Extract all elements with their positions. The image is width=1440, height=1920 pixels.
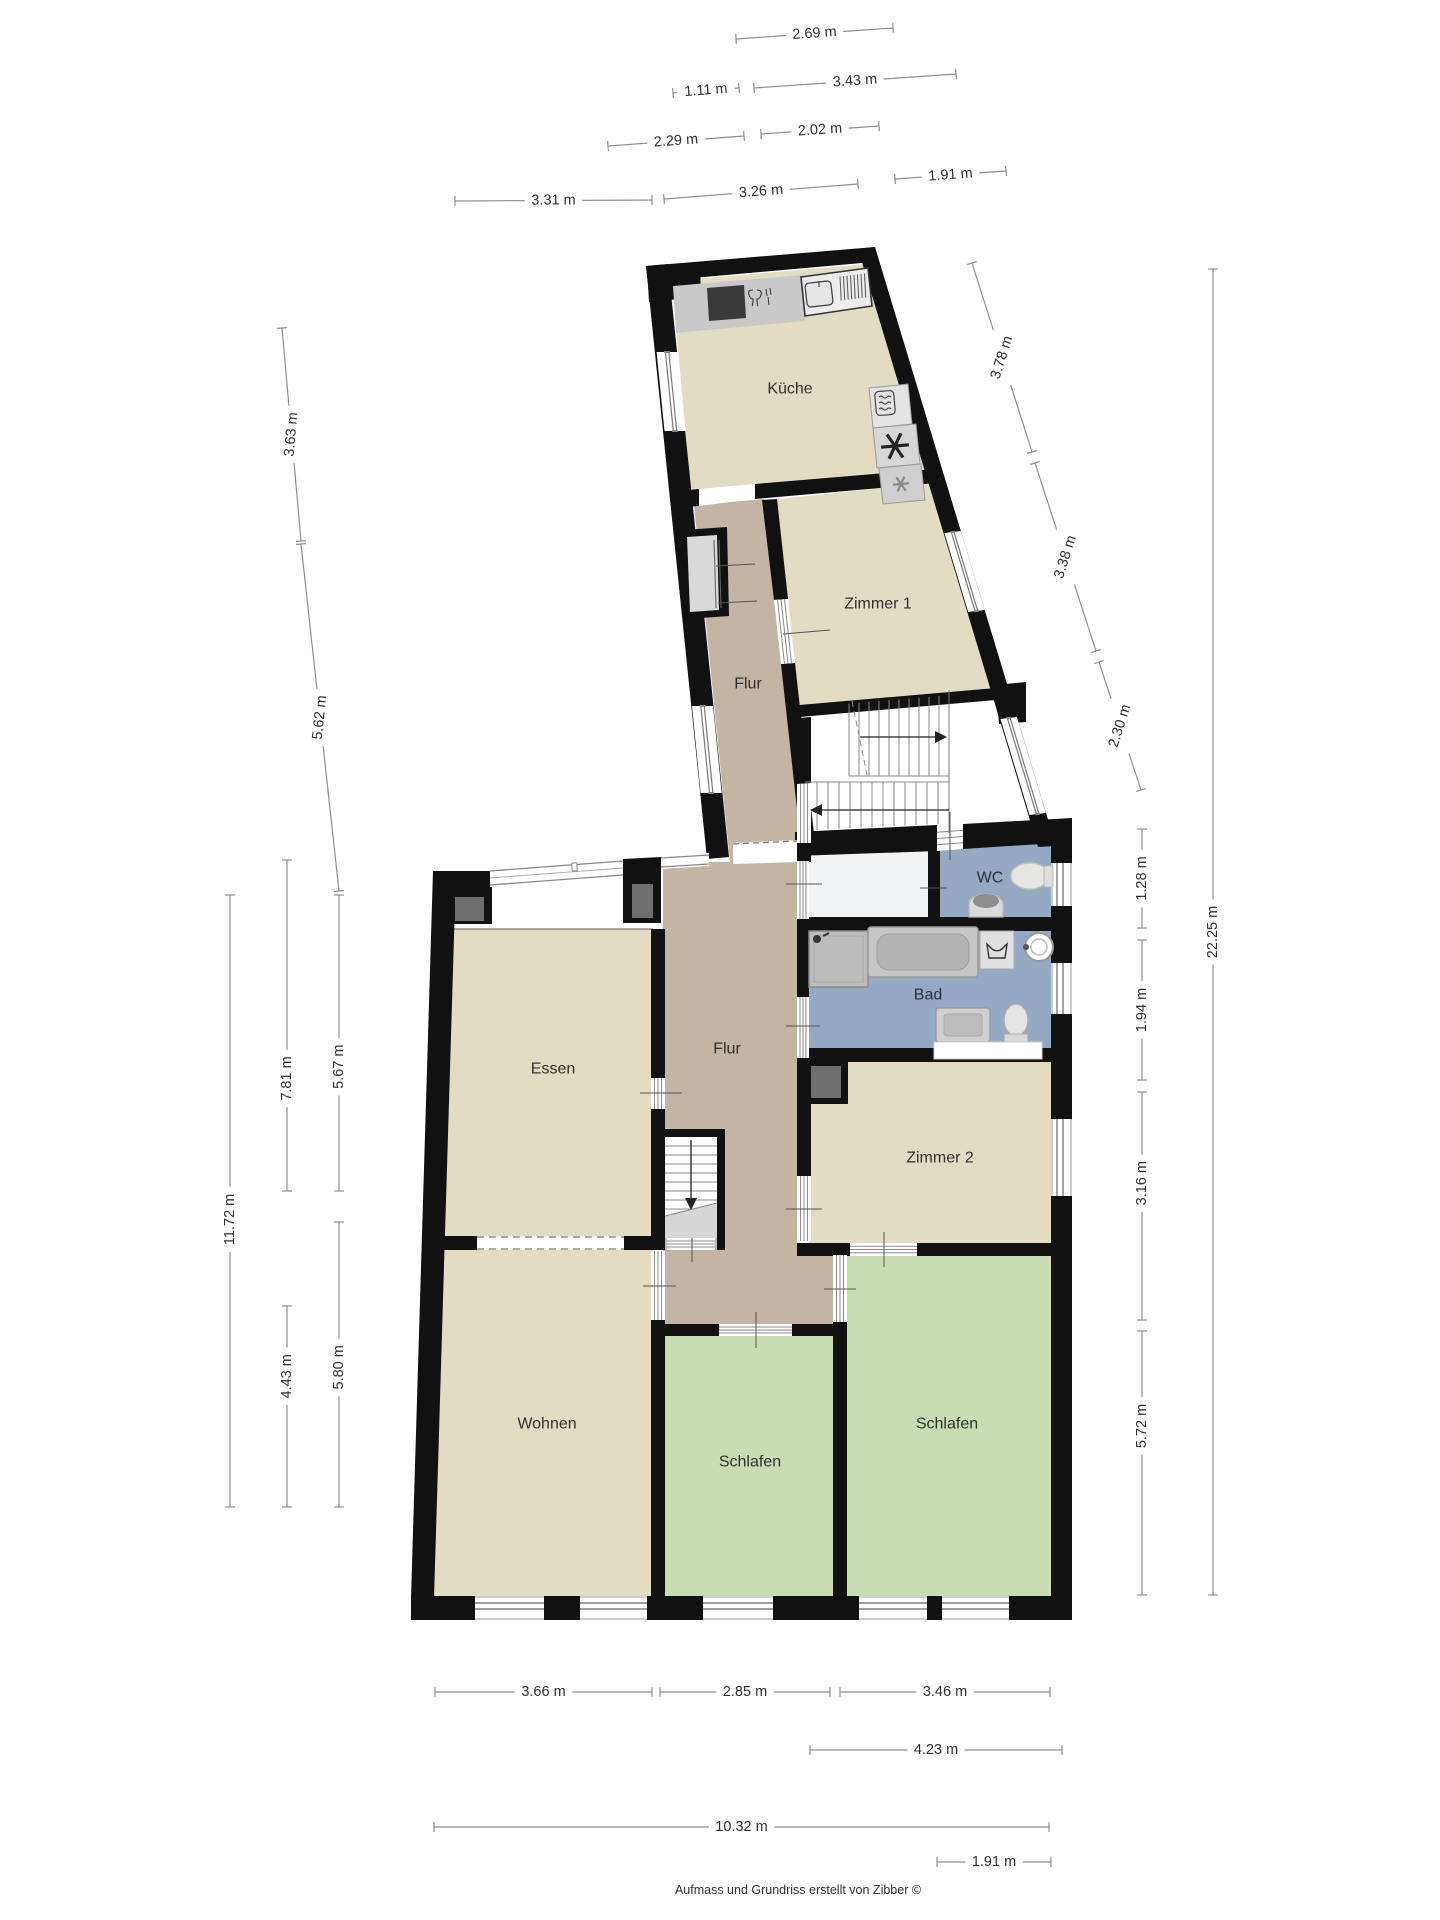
svg-text:22.25 m: 22.25 m: [1205, 906, 1221, 958]
svg-text:11.72 m: 11.72 m: [222, 1194, 238, 1245]
svg-text:2.69 m: 2.69 m: [792, 24, 837, 43]
svg-text:Küche: Küche: [767, 381, 812, 398]
svg-text:WC: WC: [977, 870, 1004, 887]
svg-text:1.94 m: 1.94 m: [1134, 988, 1150, 1032]
svg-text:5.67 m: 5.67 m: [331, 1045, 347, 1089]
svg-text:Essen: Essen: [531, 1061, 575, 1078]
svg-text:Schlafen: Schlafen: [719, 1454, 781, 1471]
svg-text:5.80 m: 5.80 m: [331, 1345, 347, 1389]
svg-text:3.26 m: 3.26 m: [738, 182, 783, 201]
svg-text:Zimmer 2: Zimmer 2: [906, 1150, 974, 1167]
svg-text:Bad: Bad: [914, 987, 942, 1004]
svg-text:5.72 m: 5.72 m: [1134, 1404, 1150, 1448]
svg-text:Zimmer 1: Zimmer 1: [844, 596, 912, 613]
svg-text:2.02 m: 2.02 m: [797, 121, 842, 140]
svg-text:10.32 m: 10.32 m: [715, 1819, 767, 1835]
svg-text:1.91 m: 1.91 m: [972, 1854, 1016, 1870]
svg-text:3.31 m: 3.31 m: [531, 192, 575, 208]
svg-text:1.11 m: 1.11 m: [684, 81, 728, 100]
svg-text:4.23 m: 4.23 m: [914, 1742, 958, 1758]
svg-text:3.66 m: 3.66 m: [521, 1684, 565, 1700]
svg-text:1.91 m: 1.91 m: [928, 165, 973, 184]
svg-text:3.43 m: 3.43 m: [832, 71, 877, 90]
svg-text:2.29 m: 2.29 m: [653, 131, 698, 150]
svg-text:3.16 m: 3.16 m: [1134, 1161, 1150, 1205]
svg-text:Wohnen: Wohnen: [517, 1416, 576, 1433]
svg-text:Flur: Flur: [713, 1041, 741, 1058]
svg-text:7.81 m: 7.81 m: [279, 1056, 295, 1100]
svg-text:2.85 m: 2.85 m: [723, 1684, 767, 1700]
svg-text:Aufmass und Grundriss erstellt: Aufmass und Grundriss erstellt von Zibbe…: [675, 1883, 922, 1897]
svg-text:Flur: Flur: [734, 676, 762, 693]
svg-text:4.43 m: 4.43 m: [279, 1354, 295, 1398]
svg-text:3.46 m: 3.46 m: [923, 1684, 967, 1700]
svg-text:1.28 m: 1.28 m: [1134, 856, 1150, 900]
svg-text:Schlafen: Schlafen: [916, 1416, 978, 1433]
